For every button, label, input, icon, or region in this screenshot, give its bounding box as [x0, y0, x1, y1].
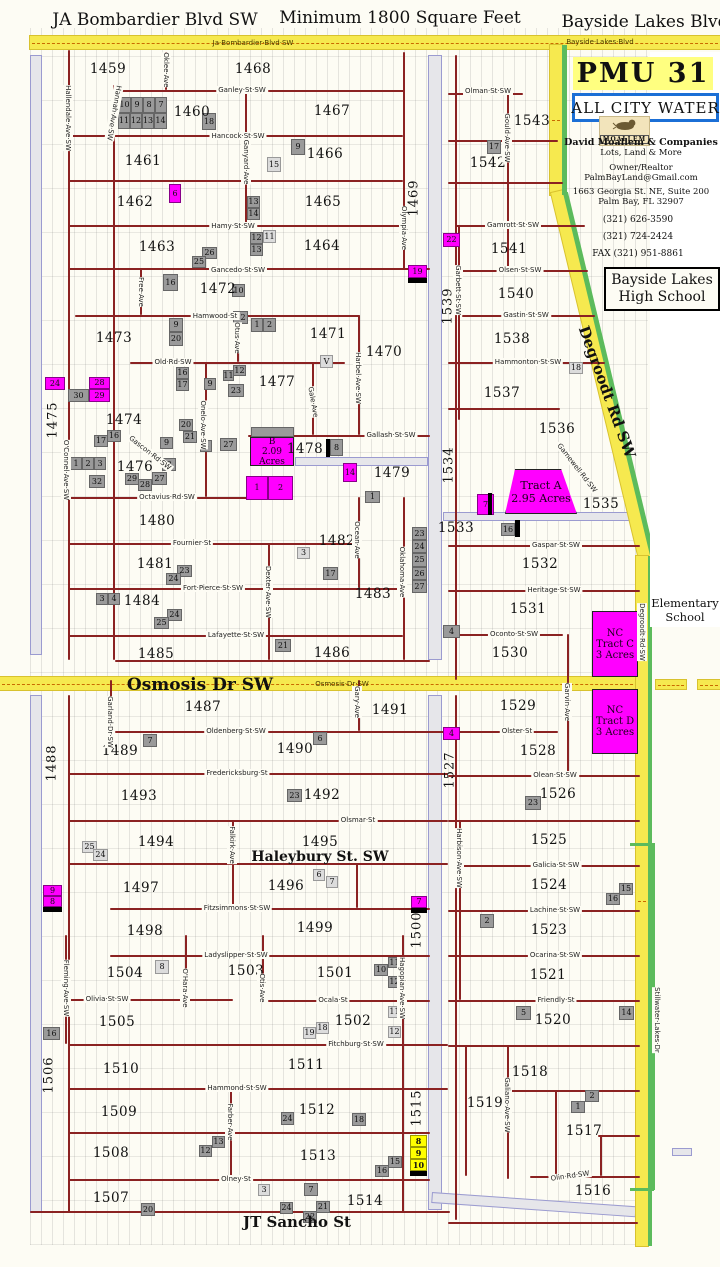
- lot: 24: [412, 540, 427, 553]
- lot: 6: [313, 732, 327, 745]
- block-number: 1542: [470, 155, 506, 171]
- street-name: Lafayette·St·SW: [206, 631, 266, 639]
- lot: 11: [223, 370, 234, 381]
- lot: 17: [94, 435, 108, 447]
- lot: 27: [412, 580, 427, 593]
- lot: [251, 427, 294, 437]
- corridor-number: 1515: [410, 1089, 425, 1126]
- block-number: 1461: [125, 153, 161, 169]
- street-name: Ganley·St·SW: [216, 86, 268, 94]
- lot: 12: [250, 232, 263, 244]
- street-line: [458, 225, 460, 420]
- canal: [428, 55, 442, 660]
- road-name-large: JT Sancho St: [243, 1213, 351, 1231]
- street-line: [507, 1090, 640, 1092]
- block-number: 1531: [510, 601, 546, 617]
- lot: 1: [365, 491, 380, 503]
- block-number: 1466: [307, 146, 343, 162]
- block-number: 1465: [305, 194, 341, 210]
- street-name: O'Connel·Ave·SW: [61, 440, 71, 500]
- street-line: [448, 1222, 638, 1224]
- block-number: 1505: [99, 1014, 135, 1030]
- block-number: 1510: [103, 1061, 139, 1077]
- block-number: 1536: [539, 421, 575, 437]
- lot: 27: [220, 438, 237, 451]
- block-number: 1473: [96, 330, 132, 346]
- lot: 23: [228, 384, 244, 397]
- block-number: 1467: [314, 103, 350, 119]
- street-line: [598, 1135, 640, 1137]
- block-number: 1513: [300, 1148, 336, 1164]
- block-number: 1507: [93, 1190, 129, 1206]
- road-name-large: Osmosis Dr SW: [127, 675, 273, 695]
- marker-bar: [326, 439, 330, 457]
- street-name: Fort·Pierce·St·SW: [181, 584, 245, 592]
- road-name-large: Haleybury St. SW: [251, 849, 388, 865]
- block-number: 1521: [530, 967, 566, 983]
- street-line: [115, 731, 448, 733]
- lot: 24: [166, 573, 181, 585]
- lot: 4: [443, 727, 460, 740]
- street-name: Ladyslipper·St·SW: [202, 951, 269, 959]
- lot: 3: [258, 1184, 270, 1196]
- block-number: 1512: [299, 1102, 335, 1118]
- block-number: 1520: [535, 1012, 571, 1028]
- lot: 29: [89, 389, 110, 402]
- lot: 8: [330, 439, 343, 456]
- block-number: 1483: [355, 586, 391, 602]
- street-name: Gary·Ave: [352, 686, 362, 718]
- street-name: Ocala·St: [316, 996, 349, 1004]
- lot: 16: [107, 430, 121, 442]
- block-number: 1459: [90, 61, 126, 77]
- highlight-tract: NCTract D3 Acres: [592, 689, 638, 754]
- lot: 14: [154, 113, 167, 129]
- street-name: Friendly·St: [535, 996, 576, 1004]
- tract-label: NC: [607, 628, 623, 639]
- tract-label: Tract D: [596, 716, 634, 727]
- block-number: 1484: [124, 593, 160, 609]
- block-number: 1499: [297, 920, 333, 936]
- lot: 18: [316, 1022, 329, 1034]
- lot: 1: [251, 318, 263, 332]
- street-name: Fournier·St: [171, 539, 213, 547]
- lot: 16: [501, 523, 515, 536]
- street-line: [448, 1045, 640, 1047]
- street-name: Fitzsimmons·St·SW: [202, 904, 272, 912]
- street-name: Falkirk·Ave: [227, 826, 237, 864]
- lot: 3: [94, 457, 106, 470]
- corridor-number: 1527: [443, 751, 458, 788]
- lot: 9: [131, 97, 143, 113]
- lot: 20: [179, 419, 193, 431]
- street-name: Garland·Dr·SW: [105, 696, 115, 748]
- street-name: Harbison·Ave·SW: [454, 828, 464, 888]
- company-name: David Moallem & Companies: [564, 137, 718, 148]
- street-name: Gould·Ave·SW: [502, 113, 512, 162]
- main-road-yellow: [550, 45, 562, 195]
- lot: 10: [374, 964, 388, 976]
- lot: 16: [606, 893, 620, 905]
- street-name: Otus·Ave: [232, 322, 242, 353]
- lot: 24: [167, 609, 182, 621]
- block-number: 1517: [566, 1123, 602, 1139]
- block-number: 1477: [259, 374, 295, 390]
- lot: 14: [343, 463, 357, 482]
- lot: 25: [154, 617, 169, 629]
- lot: 7: [155, 97, 167, 113]
- street-name: Harbel·Ave·SW: [353, 352, 363, 404]
- street-line: [68, 1132, 430, 1134]
- lot: 3: [297, 547, 310, 559]
- street-line: [68, 695, 70, 1213]
- lot: 12: [199, 1145, 212, 1157]
- tract-label: 2.95 Acres: [511, 492, 571, 505]
- marker-bar: [488, 493, 492, 515]
- street-name: Dexter·Ave·SW: [263, 566, 273, 618]
- plat-map: JA Bombardier Blvd SW Minimum 1800 Squar…: [0, 0, 720, 1267]
- block-number: 1487: [185, 699, 221, 715]
- block-number: 1523: [531, 922, 567, 938]
- lot: 1: [571, 1101, 585, 1113]
- lot: 11: [263, 230, 276, 243]
- street-name: Olney·St: [219, 1175, 253, 1183]
- street-name: Octavius·Rd·SW: [137, 493, 197, 501]
- lot: 8: [143, 97, 155, 113]
- tract-label: NC: [607, 705, 623, 716]
- block-number: 1486: [314, 645, 350, 661]
- lot: 18: [569, 362, 583, 374]
- lot: 10: [410, 1159, 427, 1171]
- lot: 12: [130, 113, 142, 129]
- block-number: 1495: [302, 834, 338, 850]
- block-number: 1516: [575, 1183, 611, 1199]
- street-name: Gancedo·St·SW: [209, 266, 267, 274]
- lot: 17: [176, 379, 189, 391]
- block-number: 1494: [138, 834, 174, 850]
- block-number: 1543: [514, 113, 550, 129]
- block-number: 1514: [347, 1193, 383, 1209]
- address-line2: Palm Bay, FL 32907: [598, 197, 684, 207]
- block-number: 1537: [484, 385, 520, 401]
- tract-label: Tract A: [520, 479, 561, 492]
- block-number: 1472: [200, 281, 236, 297]
- street-name: Olean·St·SW: [531, 771, 579, 779]
- marker-bar: [408, 278, 427, 283]
- lot: 7: [411, 896, 427, 908]
- lot: 18: [352, 1113, 366, 1126]
- block-number: 1538: [494, 331, 530, 347]
- street-name: Olsen·St·SW: [497, 266, 544, 274]
- block-number: 1480: [139, 513, 175, 529]
- lot: 19: [408, 265, 427, 278]
- block-number: 1491: [372, 702, 408, 718]
- street-name: Old·Rd·SW: [152, 358, 193, 366]
- corridor-number: 1534: [442, 446, 457, 483]
- title-bayside-lakes: Bayside Lakes Blvd: [561, 12, 720, 32]
- lot: 16: [375, 1165, 389, 1177]
- fax: FAX (321) 951-8861: [592, 249, 683, 259]
- lot: 15: [388, 1156, 402, 1168]
- block-number: 1504: [107, 965, 143, 981]
- block-number: 1462: [117, 194, 153, 210]
- lot: 2: [263, 318, 276, 332]
- block-number: 1481: [137, 556, 173, 572]
- lot: 14: [619, 1006, 634, 1020]
- street-name: Ganyard·Ave: [241, 140, 251, 185]
- road-green-edge: [630, 1188, 654, 1191]
- block-number: 1497: [123, 880, 159, 896]
- block-number: 1460: [174, 104, 210, 120]
- street-line: [448, 182, 563, 184]
- street-name: Gallash·St·SW: [365, 431, 418, 439]
- lot: 20: [141, 1203, 155, 1216]
- lot: 13: [250, 244, 263, 256]
- lot: 3: [96, 593, 108, 605]
- lot: 17: [323, 567, 338, 580]
- lot: 2: [82, 457, 94, 470]
- block-number: 1492: [304, 787, 340, 803]
- tract-label: B: [269, 437, 276, 447]
- street-name: Olsmar·St: [339, 816, 378, 824]
- street-name: Fitchburg·St·SW: [326, 1040, 386, 1048]
- lot: 24: [281, 1112, 294, 1125]
- street-name: Hamy·St·SW: [209, 222, 257, 230]
- lot: 28: [138, 479, 152, 491]
- corridor-number: 1506: [42, 1056, 57, 1093]
- lot: 22: [443, 233, 460, 247]
- corridor-number: 1469: [407, 179, 422, 216]
- lot: 16: [43, 1027, 60, 1040]
- lot: 12: [388, 1026, 401, 1038]
- lot: 14: [247, 208, 260, 220]
- block-number: 1530: [492, 645, 528, 661]
- lot: 27: [152, 472, 167, 485]
- lot: 28: [89, 377, 110, 389]
- block-number: 1490: [277, 741, 313, 757]
- corridor-number: 1500: [410, 911, 425, 948]
- main-road-yellow: [656, 680, 686, 689]
- street-name: Hallendale·Ave·SW: [63, 85, 73, 151]
- street-name: Farber·Ave: [225, 1103, 235, 1140]
- marker-bar: [43, 907, 62, 912]
- street-name: Oklahoma·Ave: [397, 547, 407, 598]
- lot: 9: [410, 1147, 427, 1159]
- lot: 9: [204, 378, 216, 390]
- lot: 25: [412, 553, 427, 567]
- lot: 13: [247, 196, 260, 208]
- street-name: Ocarina·St·SW: [528, 951, 582, 959]
- address-line1: 1663 Georgia St. NE, Suite 200: [573, 187, 709, 197]
- block-number: 1476: [117, 459, 153, 475]
- street-name: Gastin·St·SW: [501, 311, 551, 319]
- block-number: 1525: [531, 832, 567, 848]
- road-green-edge: [562, 45, 567, 195]
- street-name: Hancock·St·SW: [209, 132, 266, 140]
- lot: 23: [412, 527, 427, 540]
- block-number: 1468: [235, 61, 271, 77]
- lot: V: [320, 355, 333, 368]
- lion-icon: [612, 116, 638, 135]
- street-line: [68, 180, 403, 182]
- street-line: [68, 1044, 448, 1046]
- canal: [672, 1148, 692, 1156]
- street-name: Degroodt·Rd·SW: [637, 603, 647, 661]
- block-number: 1478: [287, 441, 323, 457]
- block-number: 1519: [467, 1095, 503, 1111]
- lot: 8: [410, 1135, 427, 1147]
- street-name: O'Hara·Ave: [180, 968, 190, 1007]
- street-name: Gaspar·St·SW: [530, 541, 582, 549]
- title-minimum-sqft: Minimum 1800 Square Feet: [279, 8, 521, 28]
- owner-realtor: Owner/Realtor: [609, 163, 673, 173]
- lot: 11: [118, 113, 130, 129]
- block-number: 1532: [522, 556, 558, 572]
- lot: 1: [246, 476, 268, 500]
- block-number: 1533: [438, 520, 474, 536]
- lot: 23: [287, 789, 302, 802]
- lot: 2: [480, 914, 494, 928]
- lot: 2: [268, 476, 293, 500]
- street-name: Hagopian·Ave·SW: [397, 957, 407, 1019]
- lot: 19: [303, 1027, 316, 1039]
- lot: 8: [155, 960, 169, 974]
- block-number: 1498: [127, 923, 163, 939]
- block-number: 1464: [304, 238, 340, 254]
- lot: 5: [516, 1006, 531, 1020]
- block-number: 1528: [520, 743, 556, 759]
- lot: 24: [45, 377, 65, 390]
- block-number: 1482: [319, 533, 355, 549]
- street-name: Hammond·St·SW: [205, 1084, 268, 1092]
- street-name: Olster·St: [500, 727, 534, 735]
- road-green-edge: [630, 843, 654, 846]
- street-line: [113, 85, 115, 660]
- lot: 32: [89, 475, 105, 488]
- block-number: 1524: [531, 877, 567, 893]
- corridor-number: 1488: [45, 744, 60, 781]
- street-name: Onelo·Ave·SW: [198, 400, 208, 449]
- block-number: 1511: [288, 1057, 324, 1073]
- lot: 9: [169, 318, 183, 332]
- lot: 15: [267, 157, 281, 172]
- street-name: Oconto·St·SW: [488, 630, 540, 638]
- lot: 21: [316, 1201, 330, 1213]
- block-number: 1474: [106, 412, 142, 428]
- street-name: Ocean·Ave: [352, 521, 362, 558]
- street-name: Heritage·St·SW: [525, 586, 582, 594]
- highlight-tract: NCTract C3 Acres: [592, 611, 638, 677]
- lot: 24: [93, 849, 108, 861]
- block-number: 1471: [310, 326, 346, 342]
- lot: 9: [291, 139, 305, 155]
- street-line: [30, 1211, 450, 1213]
- street-line: [448, 820, 640, 822]
- lot: 6: [169, 184, 181, 203]
- lot: 4: [108, 593, 120, 605]
- block-number: 1463: [139, 239, 175, 255]
- street-name: Fleming·Ave·SW: [61, 960, 71, 1017]
- lot: 1: [70, 457, 82, 470]
- lot: 7: [304, 1183, 318, 1196]
- lot: 23: [525, 796, 541, 810]
- street-line: [600, 1135, 602, 1176]
- lot: 9: [160, 437, 173, 449]
- lot: 20: [169, 332, 183, 346]
- lot: 17: [487, 140, 501, 154]
- block-number: 1470: [366, 344, 402, 360]
- corridor-number: 1539: [441, 287, 456, 324]
- street-name: Hammonton·St·SW: [493, 358, 563, 366]
- lot: 21: [183, 431, 197, 443]
- tract-label: 3 Acres: [596, 650, 634, 661]
- block-number: 1540: [498, 286, 534, 302]
- lot: 7: [326, 876, 338, 888]
- street-name: Otis·Ave: [257, 974, 267, 1003]
- street-name: Oklee·Ave: [161, 52, 171, 87]
- street-name: Oldenberg·St·SW: [204, 727, 268, 735]
- main-road-yellow: [698, 680, 720, 689]
- block-number: 1496: [268, 878, 304, 894]
- block-number: 1502: [335, 1013, 371, 1029]
- street-name: Gamrott·St·SW: [485, 221, 541, 229]
- street-name: Olivia·St·SW: [84, 995, 131, 1003]
- lot: 30: [68, 389, 89, 402]
- block-number: 1485: [138, 646, 174, 662]
- street-name: Stillwater·Lakes·Dr: [652, 987, 662, 1053]
- street-line: [68, 820, 448, 822]
- lot: 6: [313, 869, 325, 881]
- street-line: [455, 55, 457, 680]
- street-line: [448, 408, 560, 410]
- block-number: 1541: [491, 241, 527, 257]
- block-number: 1535: [583, 496, 619, 512]
- lot: 13: [142, 113, 154, 129]
- street-name: Garvin·Ave: [562, 683, 572, 721]
- marker-bar: [410, 1171, 427, 1176]
- street-line: [356, 863, 358, 908]
- lot: 8: [43, 896, 62, 907]
- elementary-school-label: Elementary School: [650, 596, 720, 625]
- lot: 25: [192, 256, 206, 268]
- block-number: 1509: [101, 1104, 137, 1120]
- block-number: 1529: [500, 698, 536, 714]
- lot: 12: [233, 365, 246, 376]
- tract-label: 3 Acres: [596, 727, 634, 738]
- block-number: 1479: [374, 465, 410, 481]
- block-number: 1508: [93, 1145, 129, 1161]
- marker-bar: [515, 520, 520, 537]
- block-number: 1493: [121, 788, 157, 804]
- phone-1: (321) 626-3590: [603, 215, 673, 225]
- canal: [30, 695, 42, 1213]
- block-number: 1501: [317, 965, 353, 981]
- title-ja-bombardier: JA Bombardier Blvd SW: [52, 10, 257, 30]
- street-name: Osmosis·Dr·SW: [313, 680, 371, 688]
- lot: 7: [143, 734, 157, 747]
- street-name: Fredericksburg·St: [204, 769, 269, 777]
- street-name: Bayside·Lakes·Blvd: [564, 38, 635, 46]
- block-number: 1518: [512, 1064, 548, 1080]
- block-number: 1526: [540, 786, 576, 802]
- street-name: Galicia·St·SW: [531, 861, 582, 869]
- company-tagline: Lots, Land & More: [600, 148, 681, 158]
- lot: 9: [43, 885, 62, 896]
- street-name: Lachine·St·SW: [528, 906, 582, 914]
- high-school-box: Bayside Lakes High School: [604, 267, 720, 311]
- corridor-number: 1475: [46, 401, 61, 438]
- street-name: Olman·St·SW: [463, 87, 513, 95]
